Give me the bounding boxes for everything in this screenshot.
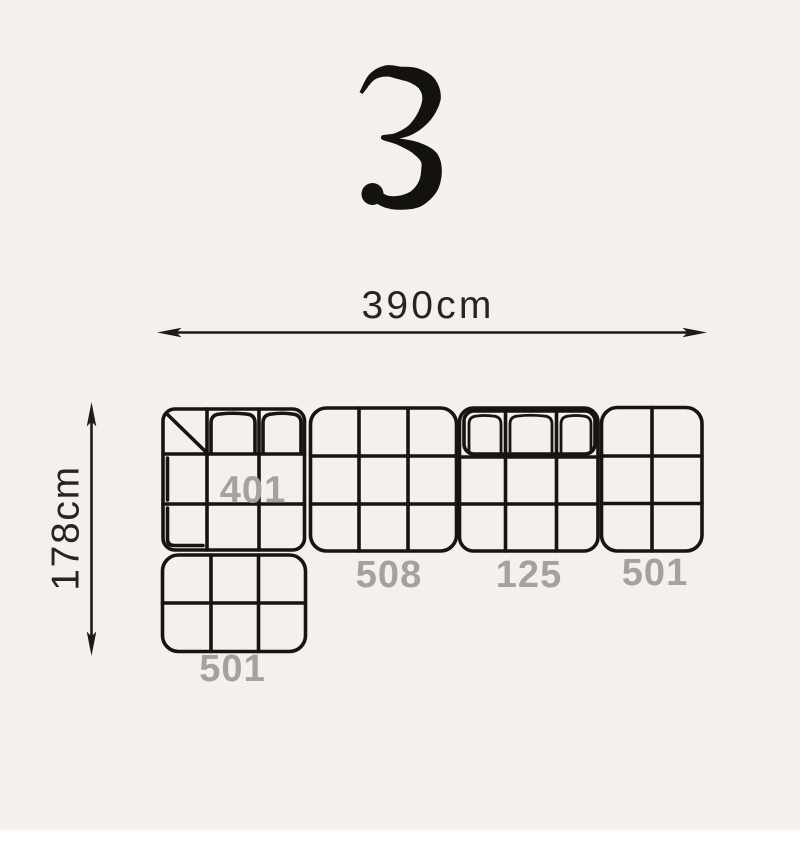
- svg-text:390cm: 390cm: [361, 284, 494, 327]
- svg-text:178cm: 178cm: [45, 465, 88, 591]
- svg-text:401: 401: [220, 470, 286, 512]
- svg-text:125: 125: [496, 554, 562, 596]
- svg-text:501: 501: [622, 552, 688, 594]
- svg-text:508: 508: [356, 554, 422, 596]
- svg-text:501: 501: [199, 648, 265, 690]
